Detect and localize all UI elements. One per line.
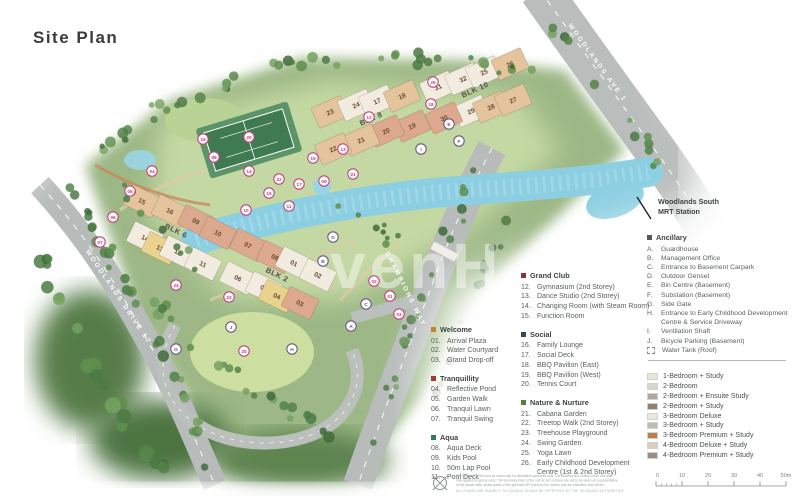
map-marker: 18	[426, 99, 436, 109]
map-marker: 09	[319, 176, 329, 186]
unit-type-row: 3-Bedroom Deluxe	[648, 411, 798, 421]
legend-bullet-icon	[431, 435, 436, 440]
unit-color-swatch	[648, 443, 657, 448]
legend-item: B.Management Office	[647, 254, 795, 263]
svg-text:D: D	[331, 235, 335, 241]
legend-item: 17.Social Deck	[521, 351, 651, 361]
map-marker: 15	[308, 153, 318, 163]
legend-item: 09.Kids Pool	[431, 454, 527, 464]
map-marker: 25	[239, 346, 249, 356]
page-title: Site Plan	[33, 28, 118, 48]
map-marker: 17	[294, 179, 304, 189]
legend-item: 04.Reflective Pond	[431, 385, 527, 395]
unit-type-row: 2-Bedroom	[648, 382, 798, 392]
legend-item: A.Guardhouse	[647, 245, 795, 254]
mrt-station-label: Woodlands South MRT Station	[658, 197, 719, 216]
svg-text:06: 06	[110, 215, 116, 221]
svg-text:10: 10	[243, 208, 249, 214]
map-marker: 19	[198, 134, 208, 144]
map-marker: E	[444, 119, 454, 129]
legend-bullet-icon	[521, 400, 526, 405]
map-marker: 24	[171, 280, 181, 290]
map-marker: D	[328, 232, 338, 242]
legend-item: 10.50m Lap Pool	[431, 464, 527, 474]
legend-item: 07.Tranquil Swing	[431, 415, 527, 425]
legend-item: D.Outdoor Genset	[647, 272, 795, 281]
svg-text:J: J	[230, 325, 233, 331]
svg-text:22: 22	[276, 177, 282, 183]
unit-color-swatch	[648, 453, 657, 458]
legend-group-title: Ancillary	[647, 233, 795, 242]
map-marker: I	[416, 144, 426, 154]
map-marker: 01	[385, 291, 395, 301]
svg-text:14: 14	[246, 169, 252, 175]
svg-text:13: 13	[340, 147, 346, 153]
legend-item: 01.Arrival Plaza	[431, 337, 527, 347]
legend-item: F.Substation (Basement)	[647, 291, 795, 300]
legend-item: 08.Aqua Deck	[431, 444, 527, 454]
legend-item: 19.BBQ Pavilion (West)	[521, 371, 651, 381]
svg-text:40: 40	[757, 473, 763, 479]
legend-divider	[648, 360, 786, 361]
map-marker: 22	[274, 174, 284, 184]
legend-item: E.Bin Centre (Basement)	[647, 281, 795, 290]
legend-group: Tranquillity04.Reflective Pond05.Garden …	[431, 374, 527, 425]
unit-color-swatch	[648, 404, 657, 409]
svg-text:24: 24	[173, 283, 179, 289]
legend-item: 24.Swing Garden	[521, 439, 651, 449]
svg-text:05: 05	[127, 189, 133, 195]
svg-text:50m: 50m	[781, 473, 792, 479]
unit-type-legend: 1-Bedroom + Study2-Bedroom2-Bedroom + En…	[648, 372, 798, 460]
map-marker: 16	[264, 188, 274, 198]
legend-item: 05.Garden Walk	[431, 395, 527, 405]
legend-group-title: Welcome	[431, 325, 527, 334]
map-marker: 20	[244, 132, 254, 142]
map-marker: 23	[224, 292, 234, 302]
mrt-line-1: Woodlands South	[658, 197, 719, 207]
legend-group-title: Social	[521, 330, 651, 339]
legend-item: 16.Family Lounge	[521, 341, 651, 351]
unit-type-row: 3-Bedroom + Study	[648, 421, 798, 431]
svg-text:A: A	[349, 324, 353, 330]
legend-bullet-icon	[647, 235, 652, 240]
unit-color-swatch	[648, 394, 657, 399]
svg-text:10: 10	[679, 473, 685, 479]
svg-text:15: 15	[310, 156, 316, 162]
compass-icon	[430, 473, 450, 498]
map-marker: 06	[108, 212, 118, 222]
scale-bar: 01020304050m	[652, 469, 792, 496]
unit-color-swatch	[648, 384, 657, 389]
svg-text:C: C	[364, 302, 368, 308]
svg-text:G: G	[174, 347, 178, 353]
svg-text:07: 07	[97, 240, 103, 246]
unit-type-row: 4-Bedroom Premium + Study	[648, 450, 798, 460]
svg-text:02: 02	[371, 279, 377, 285]
map-marker: 12	[364, 112, 374, 122]
svg-text:21: 21	[350, 172, 356, 178]
legend-item: 06.Tranquil Lawn	[431, 405, 527, 415]
svg-text:12: 12	[366, 115, 372, 121]
legend-item: 23.Treehouse Playground	[521, 429, 651, 439]
legend-item: 25.Yoga Lawn	[521, 449, 651, 459]
map-marker: H	[287, 344, 297, 354]
map-marker: 05	[125, 186, 135, 196]
map-marker: 03	[394, 309, 404, 319]
legend-item: 02.Water Courtyard	[431, 346, 527, 356]
map-marker: 07	[95, 237, 105, 247]
legend-item: 21.Cabana Garden	[521, 410, 651, 420]
water-tank-icon	[647, 347, 655, 354]
svg-text:17: 17	[296, 182, 302, 188]
map-marker: 14	[244, 166, 254, 176]
svg-text:H: H	[290, 347, 294, 353]
legend-item: H.Entrance to Early Childhood Developmen…	[647, 309, 795, 327]
legend-group-title: Grand Club	[521, 271, 651, 280]
legend-item: I.Ventilation Shaft	[647, 327, 795, 336]
svg-text:0: 0	[656, 473, 659, 479]
unit-color-swatch	[648, 414, 657, 419]
svg-text:11: 11	[286, 204, 291, 210]
legend-group: Welcome01.Arrival Plaza02.Water Courtyar…	[431, 325, 527, 366]
map-marker: 26	[428, 77, 438, 87]
svg-text:23: 23	[226, 295, 232, 301]
legend-bullet-icon	[521, 332, 526, 337]
unit-type-row: 4-Bedroom Deluxe + Study	[648, 441, 798, 451]
legend-group: Social16.Family Lounge17.Social Deck18.B…	[521, 330, 651, 390]
map-marker: G	[171, 344, 181, 354]
unit-type-row: 2-Bedroom + Ensuite Study	[648, 392, 798, 402]
legend-column-1: Welcome01.Arrival Plaza02.Water Courtyar…	[431, 325, 527, 491]
map-marker: 13	[338, 144, 348, 154]
svg-text:03: 03	[396, 312, 402, 318]
legend-item: G.Side Gate	[647, 300, 795, 309]
legend-item: 14.Changing Room (with Steam Room)	[521, 302, 651, 312]
legend-item: 12.Gymnasium (2nd Storey)	[521, 283, 651, 293]
svg-text:08: 08	[211, 155, 217, 161]
legend-bullet-icon	[431, 376, 436, 381]
svg-text:01: 01	[387, 294, 393, 300]
legend-item: C.Entrance to Basement Carpark	[647, 263, 795, 272]
map-marker: 11	[284, 201, 294, 211]
legend-item: 18.BBQ Pavilion (East)	[521, 361, 651, 371]
svg-text:20: 20	[705, 473, 711, 479]
legend-column-ancillary: AncillaryA.GuardhouseB.Management Office…	[647, 233, 795, 363]
svg-text:20: 20	[246, 135, 252, 141]
legend-item: Water Tank (Roof)	[647, 346, 795, 355]
map-marker: C	[361, 299, 371, 309]
unit-color-swatch	[648, 433, 657, 438]
legend-column-2: Grand Club12.Gymnasium (2nd Storey)13.Da…	[521, 271, 651, 486]
disclaimer-line: ALL PLANS ARE SUBJECT TO CHANGE AS MAY B…	[456, 489, 646, 494]
svg-text:16: 16	[266, 191, 272, 197]
legend-item: 03.Grand Drop-off	[431, 356, 527, 366]
site-plan-page: { "page": { "title": "Site Plan", "water…	[0, 0, 800, 500]
map-marker: 08	[209, 152, 219, 162]
legend-item: 15.Function Room	[521, 312, 651, 322]
svg-text:04: 04	[149, 169, 155, 175]
legend-group-title: Nature & Nurture	[521, 398, 651, 407]
svg-text:09: 09	[321, 179, 327, 185]
svg-text:26: 26	[430, 80, 436, 86]
legend-group-title: Tranquillity	[431, 374, 527, 383]
map-marker: 02	[369, 276, 379, 286]
unit-type-row: 3-Bedroom Premium + Study	[648, 431, 798, 441]
watermark: venH	[330, 230, 503, 302]
map-marker: A	[346, 321, 356, 331]
legend-group: AncillaryA.GuardhouseB.Management Office…	[647, 233, 795, 355]
map-marker: 04	[147, 166, 157, 176]
disclaimer-line: of the actual units, strata areas or the…	[456, 483, 646, 488]
svg-text:F: F	[458, 139, 461, 145]
legend-bullet-icon	[431, 327, 436, 332]
svg-text:19: 19	[200, 137, 206, 143]
map-marker: F	[454, 136, 464, 146]
legend-group-title: Aqua	[431, 433, 527, 442]
svg-text:30: 30	[731, 473, 737, 479]
svg-text:18: 18	[428, 102, 434, 108]
legend-item: 20.Tennis Court	[521, 380, 651, 390]
svg-text:B: B	[321, 259, 325, 265]
legend-bullet-icon	[521, 273, 526, 278]
map-marker: 21	[348, 169, 358, 179]
legend-group: Grand Club12.Gymnasium (2nd Storey)13.Da…	[521, 271, 651, 322]
unit-type-row: 1-Bedroom + Study	[648, 372, 798, 382]
map-marker: J	[226, 322, 236, 332]
legend-item: 22.Treetop Walk (2nd Storey)	[521, 419, 651, 429]
map-marker: B	[318, 256, 328, 266]
unit-color-swatch	[648, 374, 657, 379]
svg-text:25: 25	[241, 349, 247, 355]
legend-group: Nature & Nurture21.Cabana Garden22.Treet…	[521, 398, 651, 478]
mrt-line-2: MRT Station	[658, 207, 719, 217]
unit-type-row: 2-Bedroom + Study	[648, 401, 798, 411]
disclaimer: The design/s of this unit as shown are f…	[456, 474, 646, 493]
unit-color-swatch	[648, 423, 657, 428]
legend-item: 13.Dance Studio (2nd Storey)	[521, 292, 651, 302]
map-marker: 10	[241, 205, 251, 215]
legend-item: J.Bicycle Parking (Basement)	[647, 337, 795, 346]
